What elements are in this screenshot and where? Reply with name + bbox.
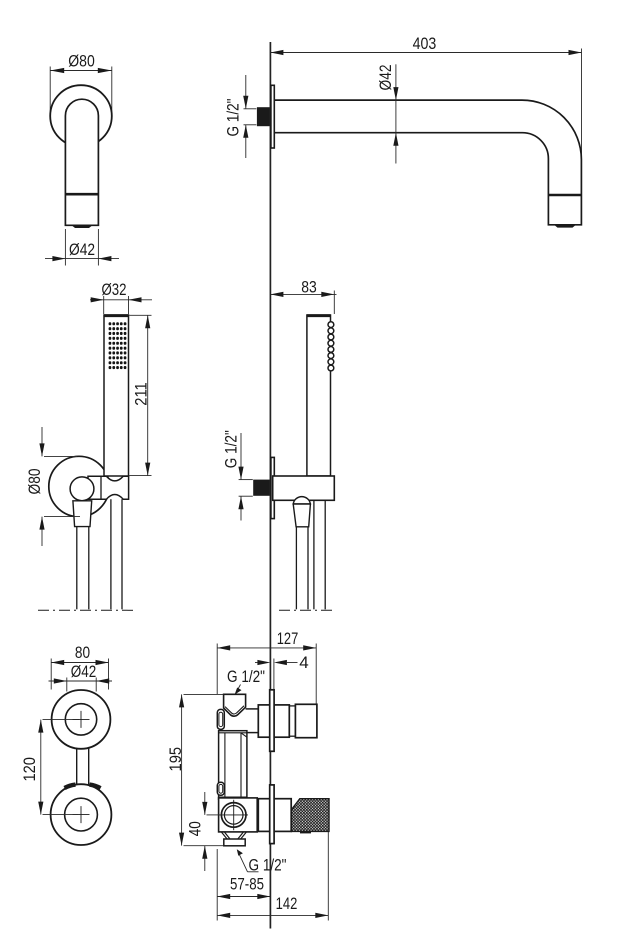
svg-text:G 1/2": G 1/2" bbox=[224, 99, 243, 137]
svg-text:40: 40 bbox=[186, 821, 205, 836]
svg-text:211: 211 bbox=[132, 382, 151, 406]
svg-text:142: 142 bbox=[276, 894, 298, 913]
svg-text:G 1/2": G 1/2" bbox=[222, 430, 241, 468]
svg-text:Ø42: Ø42 bbox=[69, 240, 95, 259]
svg-text:57-85: 57-85 bbox=[230, 875, 264, 894]
svg-text:80: 80 bbox=[75, 643, 90, 662]
svg-text:Ø80: Ø80 bbox=[68, 52, 95, 71]
svg-text:195: 195 bbox=[166, 747, 185, 772]
svg-text:Ø42: Ø42 bbox=[71, 662, 97, 681]
svg-text:Ø80: Ø80 bbox=[25, 469, 44, 495]
svg-text:120: 120 bbox=[20, 757, 39, 782]
svg-text:G 1/2": G 1/2" bbox=[227, 667, 265, 686]
svg-text:4: 4 bbox=[299, 653, 308, 672]
svg-text:403: 403 bbox=[413, 34, 437, 53]
svg-text:127: 127 bbox=[277, 629, 299, 648]
svg-text:Ø42: Ø42 bbox=[376, 65, 395, 91]
svg-text:Ø32: Ø32 bbox=[102, 280, 127, 299]
svg-text:83: 83 bbox=[301, 278, 317, 297]
